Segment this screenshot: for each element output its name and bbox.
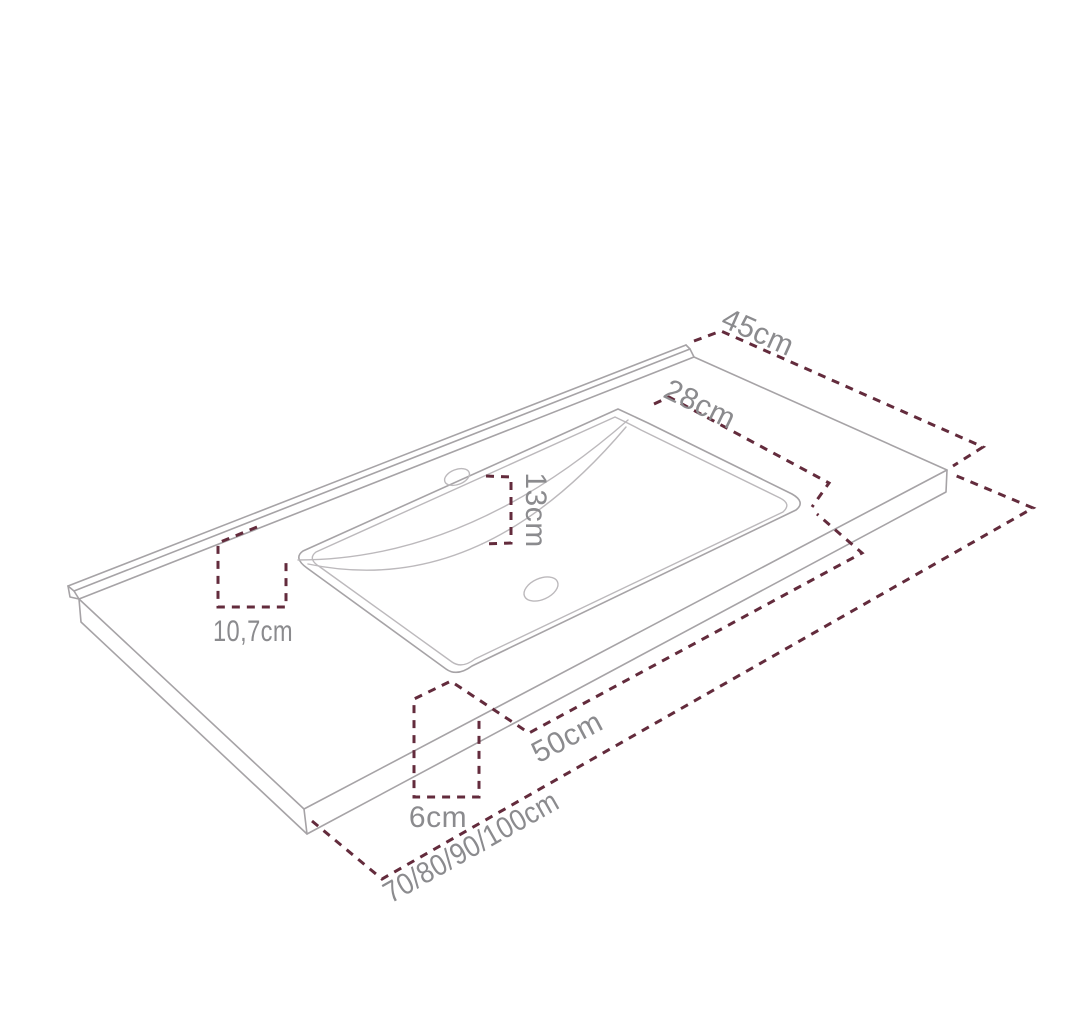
backsplash-ridge [68, 345, 694, 599]
drain-hole [520, 572, 561, 606]
countertop-slab [68, 345, 947, 834]
dimension-6cm-bracket [414, 682, 479, 797]
label-overall-depth: 45cm [717, 302, 799, 363]
dimension-labels: 45cm 28cm 13cm 10,7cm 50cm 6cm 70/80/90/… [213, 302, 799, 910]
label-basin-width: 50cm [526, 705, 608, 770]
diagram-canvas: 45cm 28cm 13cm 10,7cm 50cm 6cm 70/80/90/… [0, 0, 1075, 1017]
diagram-page: 45cm 28cm 13cm 10,7cm 50cm 6cm 70/80/90/… [0, 0, 1075, 1017]
dimension-28cm-line [654, 397, 829, 507]
label-front-offset: 6cm [409, 801, 467, 834]
label-available-widths: 70/80/90/100cm [378, 785, 565, 910]
basin-back-curve-lower [308, 427, 626, 570]
slab-front-face [304, 470, 947, 834]
dimension-10-7cm-bracket [218, 527, 286, 607]
label-bowl-back-offset: 13cm [519, 472, 552, 547]
label-basin-depth: 28cm [659, 373, 741, 436]
dimension-45cm-line [694, 331, 983, 466]
label-side-offset: 10,7cm [213, 615, 293, 648]
basin-back-curve-upper [298, 420, 628, 560]
